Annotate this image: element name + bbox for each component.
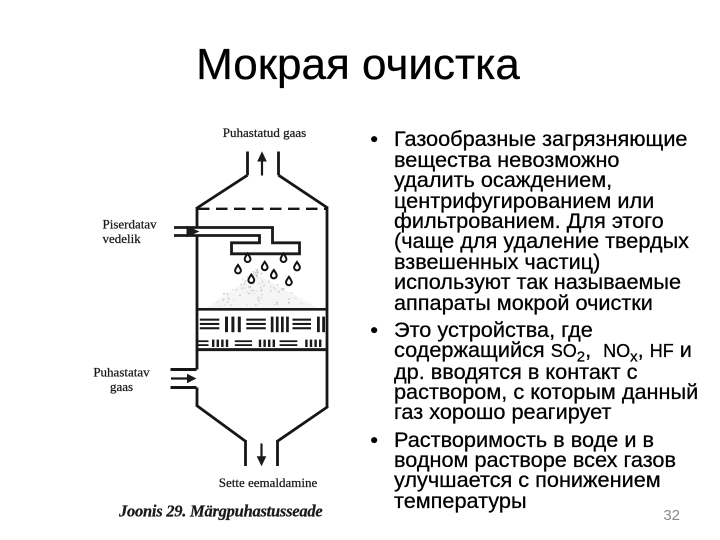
svg-text:gaas: gaas bbox=[110, 379, 133, 394]
svg-text:Puhastatud gaas: Puhastatud gaas bbox=[223, 125, 306, 140]
svg-text:Piserdatav: Piserdatav bbox=[103, 217, 158, 232]
svg-text:Joonis 29. Märgpuhastusseade: Joonis 29. Märgpuhastusseade bbox=[118, 501, 322, 520]
svg-text:vedelik: vedelik bbox=[103, 231, 142, 246]
svg-text:Puhastatav: Puhastatav bbox=[93, 365, 150, 380]
svg-text:Sette eemaldamine: Sette eemaldamine bbox=[219, 475, 318, 490]
